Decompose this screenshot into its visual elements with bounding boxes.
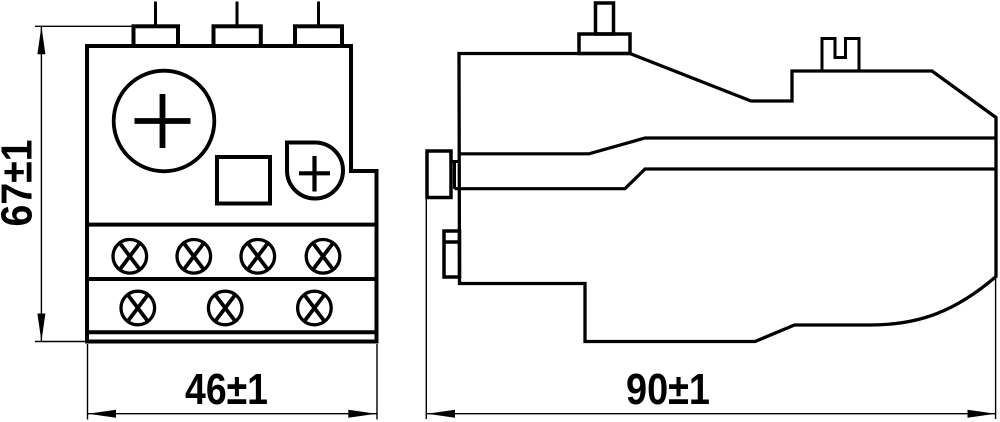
svg-text:90±1: 90±1: [626, 365, 710, 414]
svg-text:67±1: 67±1: [0, 140, 42, 227]
svg-text:46±1: 46±1: [185, 365, 268, 414]
